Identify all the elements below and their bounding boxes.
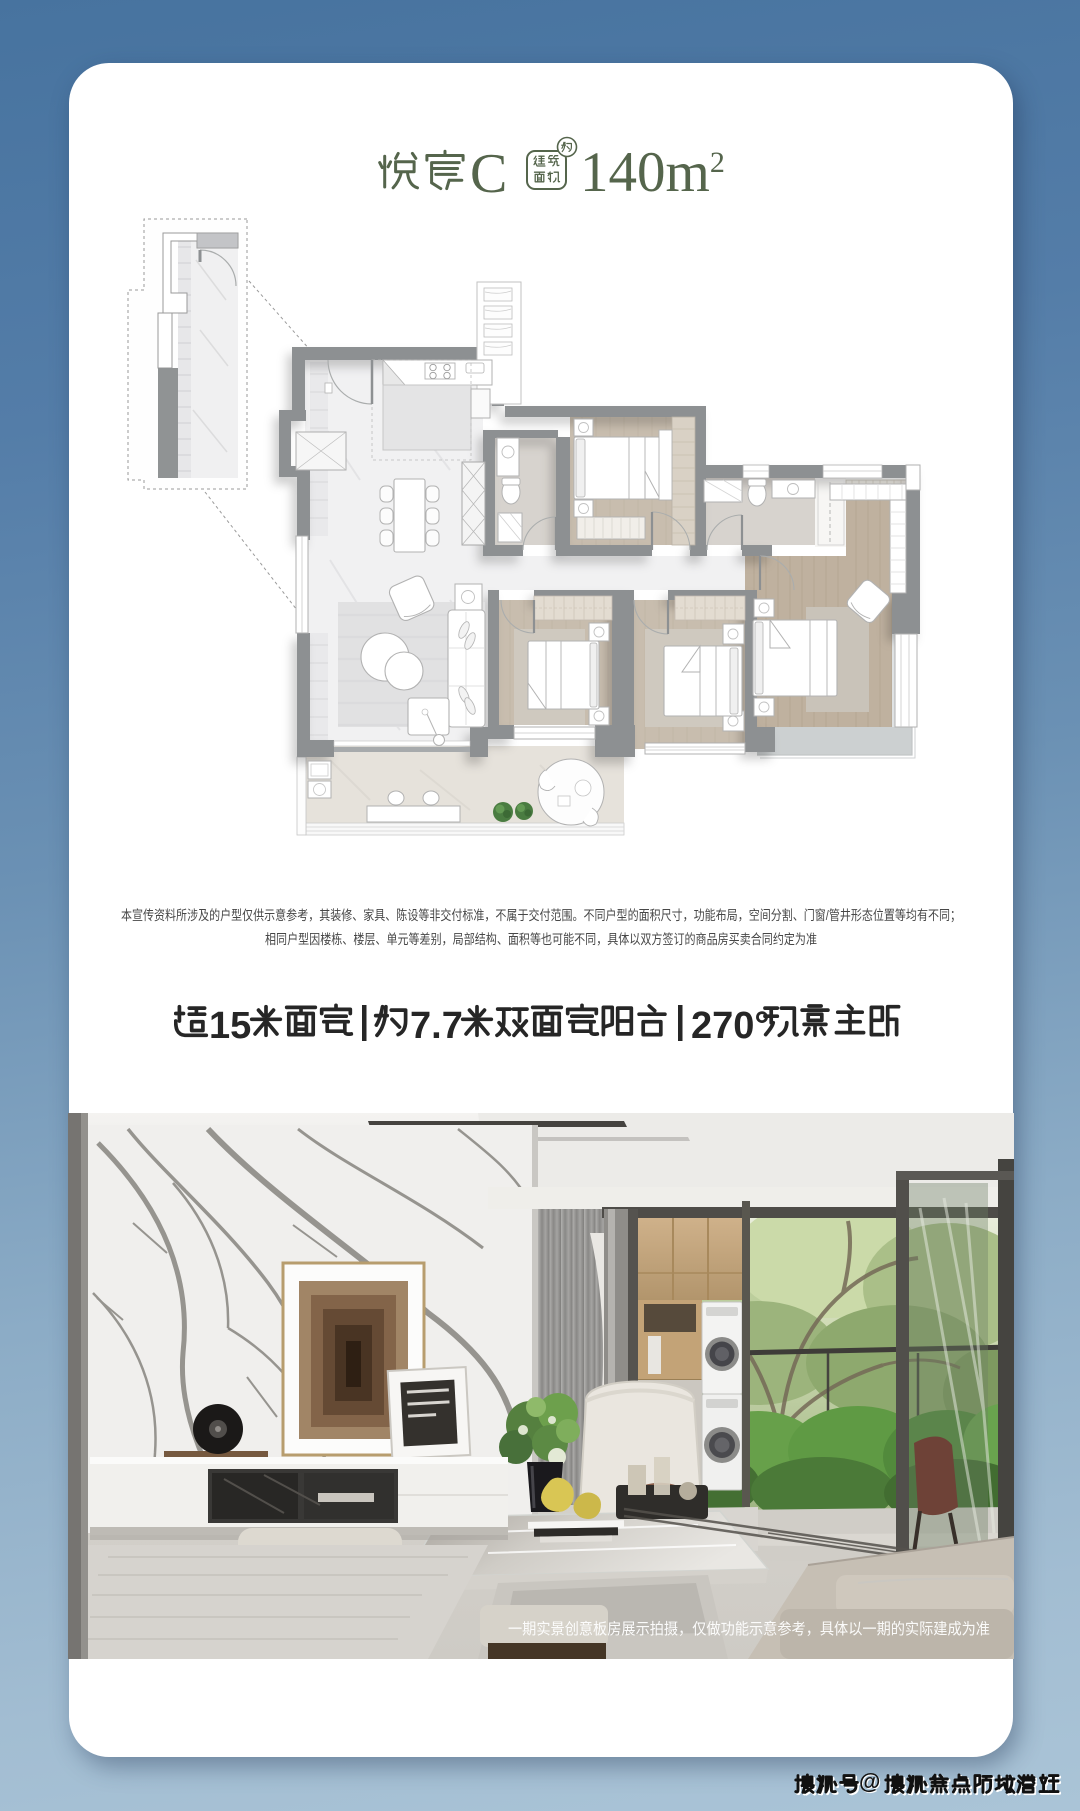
svg-text:相同户型因楼栋、楼层、单元等差别，局部结构、面积等也可能不同: 相同户型因楼栋、楼层、单元等差别，局部结构、面积等也可能不同，具体以双方签订的商… xyxy=(265,931,817,947)
svg-text:一期实景创意板房展示拍摄，仅做功能示意参考，具体以一期的实际: 一期实景创意板房展示拍摄，仅做功能示意参考，具体以一期的实际建成为准 xyxy=(508,1619,990,1638)
svg-text:本宣传资料所涉及的户型仅供示意参考，其装修、家具、陈设等非交: 本宣传资料所涉及的户型仅供示意参考，其装修、家具、陈设等非交付标准，不属于交付范… xyxy=(121,907,961,924)
svg-text:@: @ xyxy=(859,1769,880,1794)
svg-text:15: 15 xyxy=(209,1005,251,1046)
svg-text:C: C xyxy=(470,143,507,200)
svg-text:270°: 270° xyxy=(691,1005,770,1046)
svg-text:7.7: 7.7 xyxy=(410,1005,463,1046)
